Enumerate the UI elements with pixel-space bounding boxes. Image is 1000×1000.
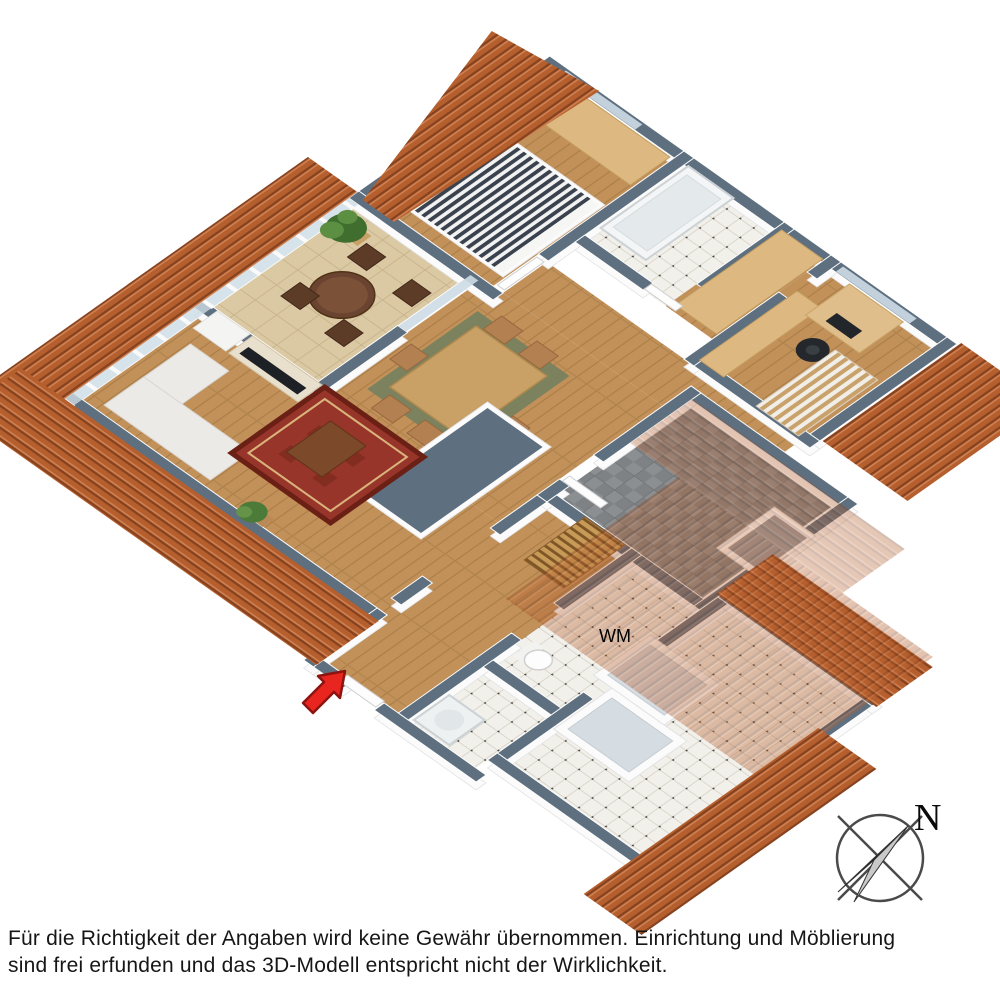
palm-leaf — [338, 210, 358, 224]
balcony-table-top — [316, 277, 368, 314]
compass-icon: N — [837, 797, 941, 902]
shower-drain-area — [434, 709, 464, 730]
disclaimer-line-1: Für die Richtigkeit der Angaben wird kei… — [8, 926, 996, 953]
floor-plan-3d-rendering: WM N — [0, 0, 1000, 1000]
disclaimer-text: Für die Richtigkeit der Angaben wird kei… — [8, 926, 996, 980]
compass-north-label: N — [914, 797, 941, 839]
office-chair-seat — [806, 345, 820, 355]
house-plant-leaf — [236, 506, 252, 517]
palm-leaf — [320, 222, 344, 239]
floor-plan-page: WM N Für die Richtigkeit der Angaben wir… — [0, 0, 1000, 1000]
compass-needle-light — [854, 826, 908, 902]
entrance-arrow-icon — [303, 671, 345, 713]
disclaimer-line-2: sind frei erfunden und das 3D-Modell ent… — [8, 953, 996, 980]
washing-machine-label: WM — [599, 626, 631, 646]
toilet — [524, 650, 552, 670]
